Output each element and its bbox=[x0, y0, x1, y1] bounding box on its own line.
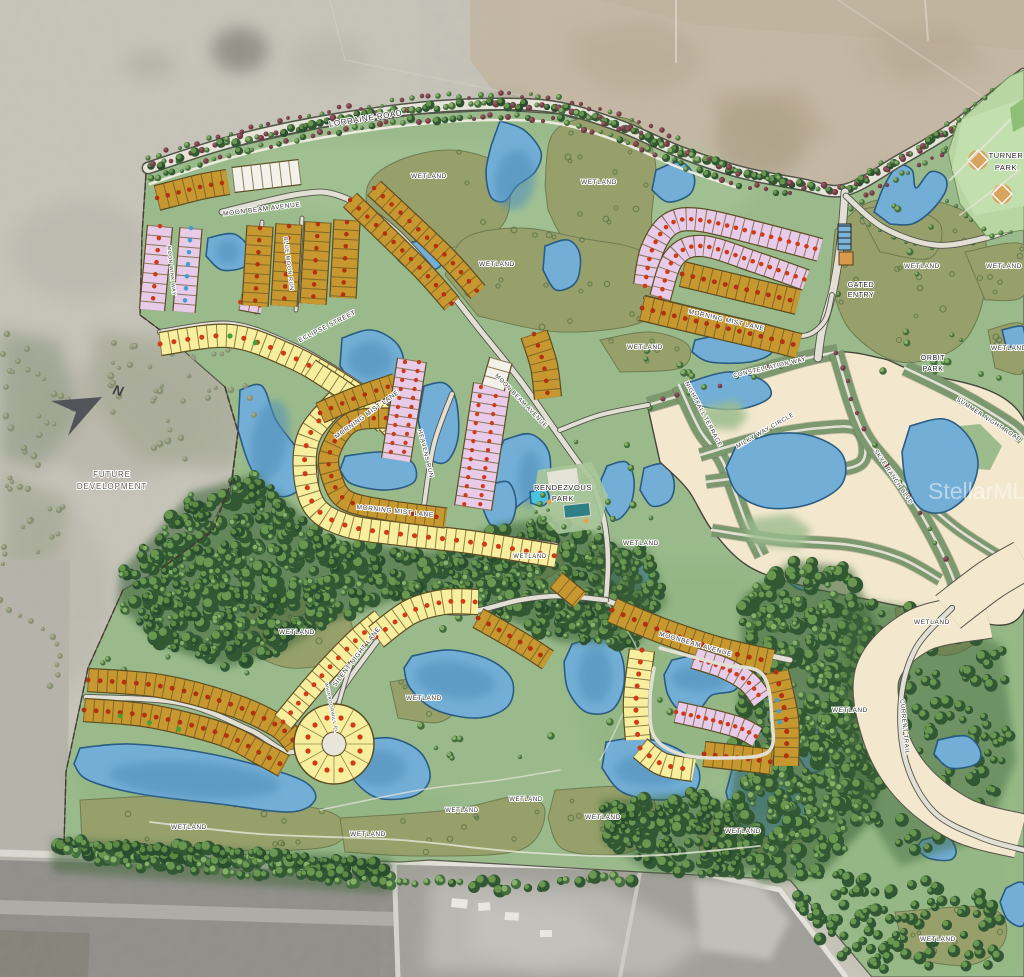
svg-text:WETLAND: WETLAND bbox=[904, 263, 940, 270]
svg-text:WETLAND: WETLAND bbox=[171, 824, 207, 831]
svg-text:PARK: PARK bbox=[923, 366, 944, 373]
svg-text:WETLAND: WETLAND bbox=[406, 695, 442, 702]
svg-text:WETLAND: WETLAND bbox=[725, 828, 761, 835]
svg-text:RENDEZVOUS: RENDEZVOUS bbox=[534, 483, 592, 492]
svg-text:PARK: PARK bbox=[995, 163, 1017, 172]
svg-text:WETLAND: WETLAND bbox=[991, 345, 1024, 352]
svg-text:WETLAND: WETLAND bbox=[627, 344, 663, 351]
svg-text:GATED: GATED bbox=[848, 282, 875, 289]
svg-text:WETLAND: WETLAND bbox=[920, 936, 956, 943]
svg-text:FUTURE: FUTURE bbox=[93, 470, 131, 479]
svg-text:WETLAND: WETLAND bbox=[279, 629, 315, 636]
svg-text:WETLAND: WETLAND bbox=[509, 797, 543, 803]
svg-text:WETLAND: WETLAND bbox=[914, 619, 950, 626]
svg-text:WETLAND: WETLAND bbox=[581, 179, 617, 186]
svg-text:WETLAND: WETLAND bbox=[832, 707, 868, 714]
svg-text:WETLAND: WETLAND bbox=[513, 554, 547, 560]
svg-text:WETLAND: WETLAND bbox=[585, 814, 621, 821]
svg-text:PARK: PARK bbox=[552, 494, 574, 503]
svg-text:DEVELOPMENT: DEVELOPMENT bbox=[77, 482, 147, 491]
svg-text:StellarMLS: StellarMLS bbox=[928, 478, 1024, 504]
svg-text:WETLAND: WETLAND bbox=[986, 263, 1022, 270]
svg-text:ORBIT: ORBIT bbox=[921, 355, 946, 362]
svg-text:WETLAND: WETLAND bbox=[411, 173, 447, 180]
svg-text:WETLAND: WETLAND bbox=[445, 808, 479, 814]
svg-text:WETLAND: WETLAND bbox=[623, 540, 659, 547]
svg-text:WETLAND: WETLAND bbox=[479, 261, 515, 268]
svg-text:WETLAND: WETLAND bbox=[350, 831, 386, 838]
svg-text:ENTRY: ENTRY bbox=[848, 292, 875, 299]
svg-text:TURNER: TURNER bbox=[989, 151, 1024, 160]
